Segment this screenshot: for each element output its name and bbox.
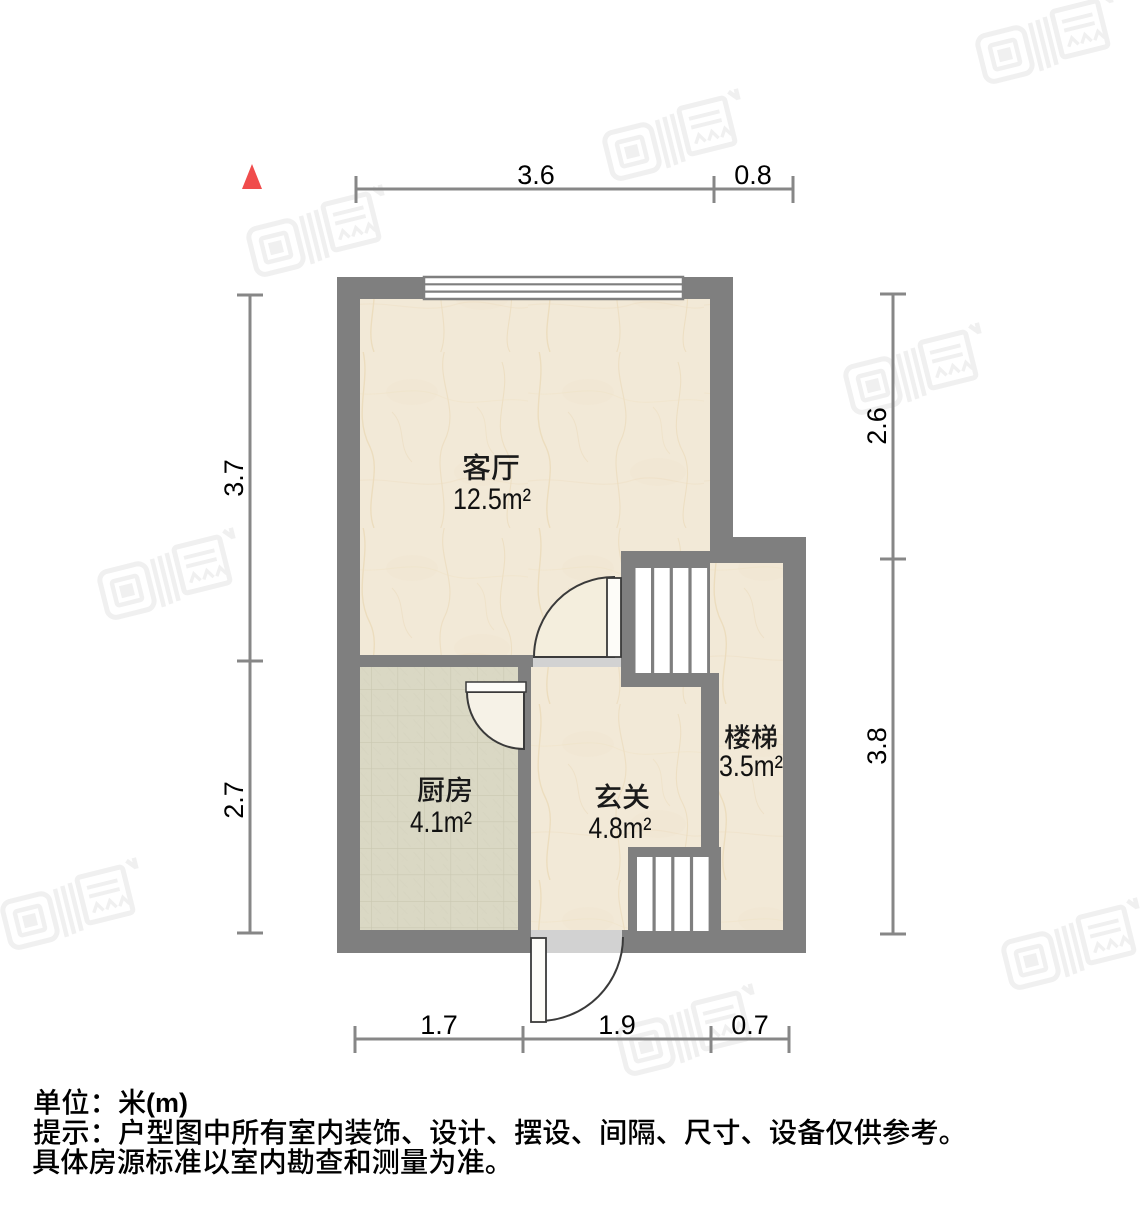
svg-text:2.7: 2.7	[219, 781, 249, 819]
svg-text:0.7: 0.7	[731, 1010, 769, 1040]
svg-text:4.1m²: 4.1m²	[410, 806, 472, 839]
svg-text:3.5m²: 3.5m²	[719, 750, 783, 783]
svg-text:(m): (m)	[146, 1088, 188, 1118]
svg-text:12.5m²: 12.5m²	[453, 483, 531, 516]
svg-text:3.7: 3.7	[219, 459, 249, 497]
svg-text:2.6: 2.6	[862, 407, 892, 445]
svg-text:3.8: 3.8	[862, 727, 892, 765]
svg-text:1.9: 1.9	[598, 1010, 636, 1040]
svg-text:4.8m²: 4.8m²	[589, 812, 652, 845]
svg-text:0.8: 0.8	[734, 160, 772, 190]
svg-text:3.6: 3.6	[517, 160, 555, 190]
svg-text:1.7: 1.7	[420, 1010, 458, 1040]
